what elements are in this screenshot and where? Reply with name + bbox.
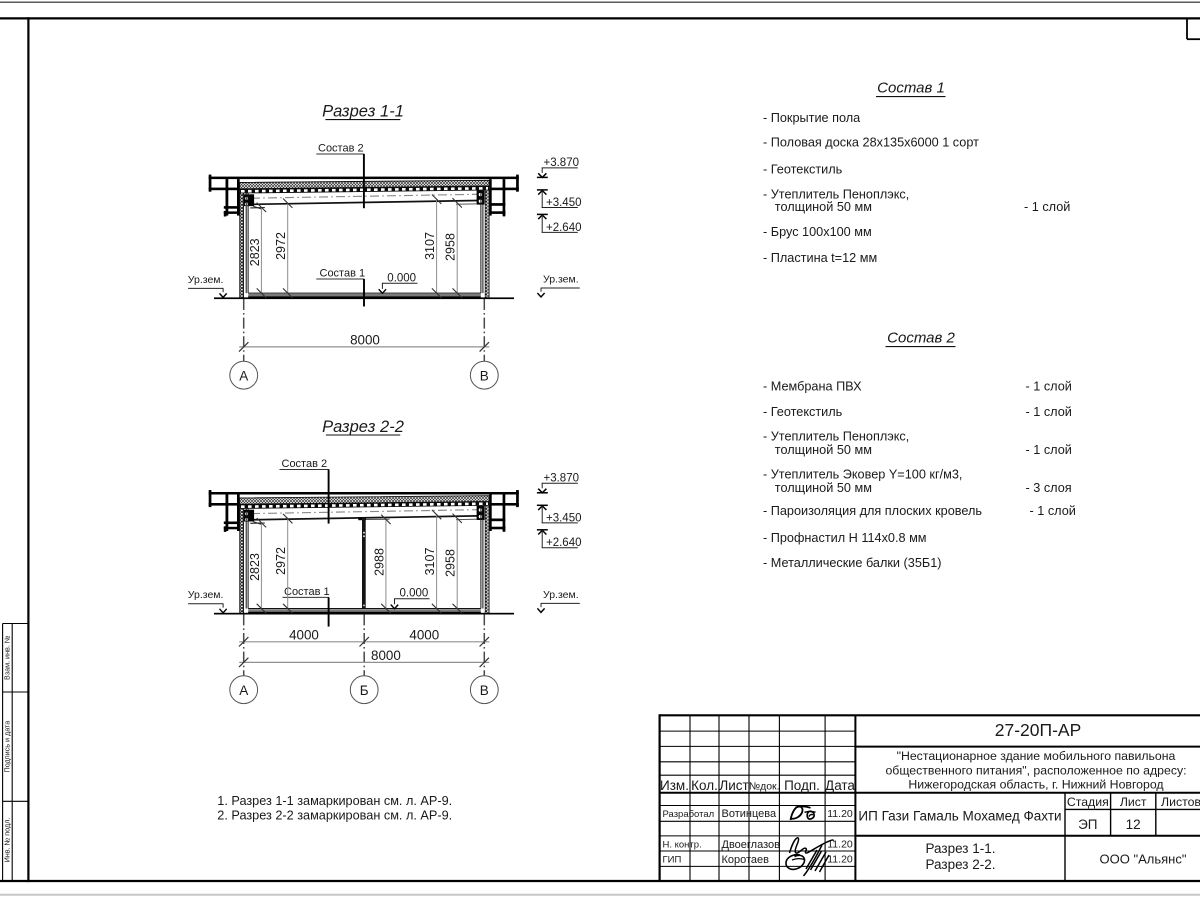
svg-text:Разработал: Разработал [663, 809, 715, 820]
svg-text:2958: 2958 [444, 549, 458, 577]
svg-text:Взам. инв. №: Взам. инв. № [3, 635, 12, 680]
svg-text:Ур.зем.: Ур.зем. [543, 273, 579, 285]
svg-text:2823: 2823 [248, 238, 262, 266]
svg-text:Разрез 1-1: Разрез 1-1 [322, 103, 404, 121]
svg-text:+3.870: +3.870 [544, 472, 580, 484]
svg-text:- Пластина t=12 мм: - Пластина t=12 мм [763, 251, 877, 265]
svg-text:27-20П-АР: 27-20П-АР [995, 720, 1082, 740]
svg-text:- 1 слой: - 1 слой [1024, 200, 1070, 214]
svg-text:Нижегородская область, г. Нижн: Нижегородская область, г. Нижний Новгоро… [908, 778, 1163, 792]
svg-text:"Нестационарное здание мобильн: "Нестационарное здание мобильного павиль… [897, 749, 1176, 763]
svg-text:Состав 1: Состав 1 [284, 586, 330, 598]
svg-text:- Геотекстиль: - Геотекстиль [763, 405, 843, 419]
svg-text:Двоеглазов: Двоеглазов [722, 839, 781, 851]
svg-text:- 1 слой: - 1 слой [1026, 405, 1072, 419]
svg-text:Стадия: Стадия [1067, 795, 1109, 809]
svg-text:3107: 3107 [423, 548, 437, 576]
svg-text:Коротаев: Коротаев [722, 854, 770, 866]
svg-text:2972: 2972 [274, 232, 288, 260]
svg-text:В: В [480, 368, 489, 383]
svg-text:Вотинцева: Вотинцева [722, 808, 777, 820]
svg-text:ГИП: ГИП [663, 854, 682, 865]
svg-text:- Покрытие пола: - Покрытие пола [763, 111, 861, 125]
svg-text:Разрез 2-2.: Разрез 2-2. [925, 857, 995, 872]
svg-text:3107: 3107 [423, 232, 437, 260]
svg-text:11.20: 11.20 [827, 808, 853, 820]
svg-text:11.20: 11.20 [827, 854, 853, 866]
svg-text:В: В [480, 683, 489, 698]
svg-text:- Геотекстиль: - Геотекстиль [763, 163, 843, 177]
svg-text:2958: 2958 [444, 233, 458, 261]
svg-text:Дата: Дата [825, 778, 855, 793]
svg-text:ИП Гази Гамаль Мохамед Фахти: ИП Гази Гамаль Мохамед Фахти [858, 808, 1061, 823]
svg-text:Подп.: Подп. [784, 778, 820, 793]
svg-text:№док.: №док. [749, 781, 780, 793]
svg-text:общественного питания", распол: общественного питания", расположенное по… [885, 763, 1186, 777]
svg-text:Состав 1: Состав 1 [877, 80, 945, 97]
svg-text:Изм.: Изм. [660, 778, 689, 793]
svg-text:Ур.зем.: Ур.зем. [543, 589, 579, 601]
svg-text:Состав 2: Состав 2 [887, 330, 955, 347]
svg-text:0.000: 0.000 [387, 272, 416, 284]
svg-text:2972: 2972 [274, 547, 288, 575]
svg-text:- Мембрана ПВХ: - Мембрана ПВХ [763, 380, 862, 394]
svg-text:- 1 слой: - 1 слой [1030, 504, 1076, 518]
svg-text:4000: 4000 [289, 627, 319, 642]
svg-text:толщиной 50 мм: толщиной 50 мм [775, 200, 872, 214]
svg-text:ООО "Альянс": ООО "Альянс" [1100, 851, 1187, 866]
svg-text:- Профнастил Н 114х0.8 мм: - Профнастил Н 114х0.8 мм [763, 531, 927, 545]
svg-text:А: А [239, 368, 248, 383]
svg-text:толщиной 50 мм: толщиной 50 мм [775, 481, 872, 495]
svg-text:Ур.зем.: Ур.зем. [188, 274, 224, 286]
svg-text:Ур.зем.: Ур.зем. [188, 589, 224, 601]
svg-text:- Металлические балки (35Б1): - Металлические балки (35Б1) [763, 556, 942, 570]
svg-text:А: А [239, 683, 248, 698]
svg-text:- 3 слоя: - 3 слоя [1026, 481, 1072, 495]
svg-text:2988: 2988 [372, 548, 386, 576]
svg-text:12: 12 [1126, 817, 1141, 832]
svg-text:Лист: Лист [1120, 795, 1147, 809]
svg-text:2. Разрез 2-2 замаркирован см.: 2. Разрез 2-2 замаркирован см. л. АР-9. [217, 809, 452, 823]
svg-text:- Пароизоляция для плоских кро: - Пароизоляция для плоских кровель [763, 504, 982, 518]
svg-text:Кол.: Кол. [691, 778, 718, 793]
svg-text:толщиной 50 мм: толщиной 50 мм [775, 443, 872, 457]
svg-text:Листов: Листов [1161, 795, 1200, 809]
svg-text:Состав 1: Состав 1 [320, 267, 366, 279]
svg-text:- Половая доска 28х135х6000 1: - Половая доска 28х135х6000 1 сорт [763, 136, 979, 150]
svg-text:Подпись и дата: Подпись и дата [3, 721, 12, 773]
svg-text:1. Разрез 1-1 замаркирован см.: 1. Разрез 1-1 замаркирован см. л. АР-9. [217, 794, 452, 808]
svg-text:4000: 4000 [409, 627, 439, 642]
svg-text:0.000: 0.000 [400, 588, 429, 600]
svg-text:Н. контр.: Н. контр. [663, 839, 702, 850]
svg-text:2823: 2823 [248, 553, 262, 581]
svg-text:- 1 слой: - 1 слой [1026, 443, 1072, 457]
svg-text:- Брус 100х100 мм: - Брус 100х100 мм [763, 225, 872, 239]
svg-text:ЭП: ЭП [1078, 817, 1097, 832]
svg-text:Разрез 1-1.: Разрез 1-1. [925, 841, 995, 856]
svg-text:Состав 2: Состав 2 [282, 458, 328, 470]
svg-text:+3.870: +3.870 [544, 157, 580, 169]
svg-text:- Утеплитель Пеноплэкс,: - Утеплитель Пеноплэкс, [763, 429, 909, 443]
svg-text:Состав 2: Состав 2 [318, 142, 364, 154]
svg-text:- Утеплитель Эковер Y=100 кг/м: - Утеплитель Эковер Y=100 кг/м3, [763, 468, 962, 482]
svg-text:Лист: Лист [719, 778, 748, 793]
svg-text:8000: 8000 [350, 332, 380, 347]
svg-text:Б: Б [360, 683, 369, 698]
svg-text:Разрез 2-2: Разрез 2-2 [322, 418, 404, 436]
svg-text:8000: 8000 [371, 648, 401, 663]
svg-text:Инв. № подл.: Инв. № подл. [3, 818, 12, 863]
svg-text:- 1 слой: - 1 слой [1026, 380, 1072, 394]
